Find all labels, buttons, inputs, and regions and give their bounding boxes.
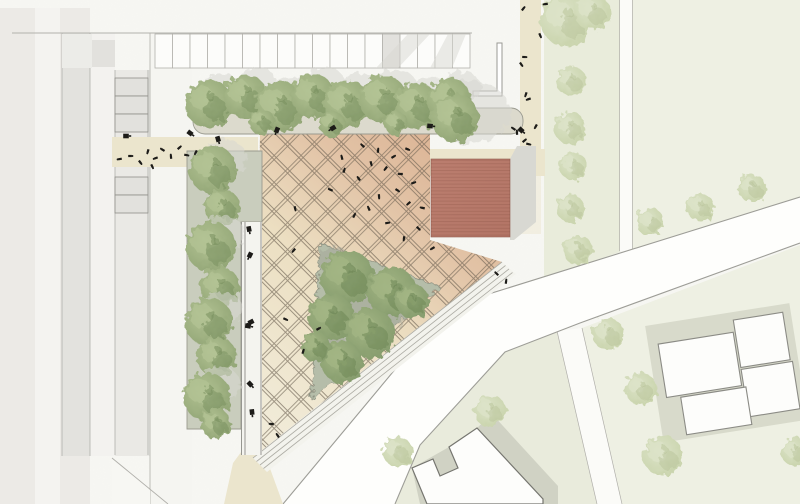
tree-shade (638, 385, 653, 400)
tree-shade (568, 77, 582, 91)
tree (384, 111, 408, 135)
bench-stem (129, 135, 131, 137)
parking-stall-top (173, 34, 191, 68)
southeast-building (741, 361, 800, 417)
parking-stall-top (225, 34, 243, 68)
tree-shade (204, 316, 227, 339)
tree-shade (605, 330, 620, 345)
tree-speckle (340, 352, 348, 360)
tree-shade (450, 112, 473, 135)
tree-speckle (218, 277, 225, 284)
tree-speckle (395, 117, 399, 121)
tree-speckle (569, 201, 574, 206)
tree-shade (259, 119, 271, 131)
tree (201, 409, 231, 439)
tree (395, 284, 429, 318)
left-building-complex (0, 8, 192, 504)
person-body (522, 56, 526, 58)
top-strip-gray-a (62, 34, 92, 68)
tree-speckle (278, 95, 287, 104)
person-figure (128, 155, 133, 157)
tree-speckle (209, 235, 218, 244)
tree-speckle (221, 198, 227, 204)
tree-shade (487, 407, 502, 422)
tree-shade (588, 7, 605, 24)
person-body (516, 131, 518, 135)
tree-speckle (649, 215, 654, 220)
tree-shade (749, 184, 762, 197)
tree-speckle (640, 381, 646, 387)
tree-speckle (577, 243, 582, 248)
tree (559, 152, 587, 180)
tree-speckle (453, 106, 462, 115)
tree-speckle (215, 417, 220, 422)
tree (738, 174, 766, 202)
tree (563, 235, 593, 265)
tree-shade (697, 203, 710, 216)
plan-root (0, 0, 800, 504)
parking-stall-top (313, 34, 331, 68)
tree (592, 318, 624, 350)
person-figure (522, 56, 527, 58)
tree-speckle (205, 385, 214, 394)
parking-stall-top (208, 34, 226, 68)
tree-shade (365, 327, 389, 351)
north-south-street (620, 0, 632, 251)
tree-speckle (331, 118, 336, 123)
tree (301, 332, 331, 362)
tree-speckle (794, 445, 799, 450)
tree-shade (338, 357, 358, 377)
pavilion-roof-stripes (431, 159, 510, 237)
person-figure (516, 130, 518, 135)
parking-stall-west (115, 114, 148, 132)
tree-speckle (572, 159, 577, 164)
parking-stall-top (365, 34, 383, 68)
tree-shade (659, 451, 678, 470)
parking-stall-west (115, 195, 148, 213)
person-figure (398, 173, 403, 175)
top-strip-gray-b (92, 40, 115, 67)
person-body (170, 155, 173, 159)
tree-speckle (381, 87, 390, 96)
parking-stall-top (348, 34, 366, 68)
tree-shade (395, 448, 409, 462)
person-body (270, 423, 274, 425)
bench-seat (245, 323, 251, 329)
tree-shade (342, 270, 368, 296)
person-body (403, 236, 406, 240)
southeast-building (733, 312, 790, 367)
tree-shade (567, 204, 580, 217)
tree-speckle (207, 310, 216, 319)
tree (383, 437, 413, 467)
tree-speckle (315, 340, 320, 345)
parking-stall-west (115, 177, 148, 195)
tree-speckle (211, 158, 220, 167)
tree-shade (326, 311, 348, 333)
parking-stall-top (330, 34, 348, 68)
tree-shade (570, 162, 583, 175)
bench-seat (427, 123, 433, 128)
tree-shade (409, 297, 425, 313)
tree-shade (213, 420, 227, 434)
left-building-wing (62, 33, 90, 456)
tree (249, 109, 275, 135)
tree-shade (394, 120, 406, 132)
site-plan-stage (0, 0, 800, 504)
tree-speckle (564, 8, 573, 17)
left-building-seam (35, 8, 60, 504)
parking-stall-top (155, 34, 173, 68)
tree-speckle (661, 446, 668, 453)
tree-speckle (243, 85, 251, 93)
tree-speckle (215, 347, 222, 354)
bench-seat (123, 134, 129, 139)
tree (643, 436, 683, 476)
bench-stem (251, 415, 253, 418)
tree (474, 395, 506, 427)
tree-speckle (390, 280, 399, 289)
tree-speckle (261, 116, 266, 121)
tree-speckle (569, 120, 575, 126)
tree (556, 66, 586, 96)
tree-speckle (311, 85, 319, 93)
person-body (128, 155, 132, 157)
tree (686, 193, 714, 221)
southeast-building (658, 332, 742, 397)
parking-aisle (90, 33, 115, 456)
bench-seat (249, 409, 254, 415)
tree (556, 194, 584, 222)
southeast-buildings (645, 303, 800, 442)
tree-speckle (591, 3, 597, 9)
person-head (131, 155, 133, 157)
tree (625, 373, 657, 405)
tree-shade (647, 218, 660, 231)
tree (636, 208, 664, 236)
tree-shade (567, 124, 582, 139)
tree-speckle (411, 293, 417, 299)
tree-speckle (570, 74, 575, 79)
tree-speckle (368, 321, 377, 330)
parking-stall-west (115, 78, 148, 96)
tree (319, 111, 345, 137)
person-body (399, 173, 403, 175)
tree-shade (208, 164, 231, 187)
bench-stem (433, 125, 436, 127)
tree (554, 112, 586, 144)
tree-speckle (489, 403, 495, 409)
parking-stall-top (295, 34, 313, 68)
parking-stall-west (115, 96, 148, 114)
tree-shade (575, 246, 589, 260)
parking-stall-top (190, 34, 208, 68)
tree-speckle (699, 200, 704, 205)
tree-speckle (751, 181, 756, 186)
tree-speckle (345, 92, 354, 101)
tree-shade (206, 241, 230, 265)
tree-speckle (329, 306, 337, 314)
tree-shade (313, 343, 327, 357)
person-body (377, 149, 380, 153)
tree-speckle (345, 264, 355, 274)
tree-speckle (207, 92, 216, 101)
tree (431, 94, 479, 142)
person-figure (269, 423, 274, 425)
parking-stall-top (278, 34, 296, 68)
tree-speckle (607, 326, 613, 332)
tree-speckle (397, 445, 402, 450)
parking-stall-top (243, 34, 261, 68)
tree (186, 222, 236, 272)
site-plan-canvas (0, 0, 800, 504)
parking-stall-top (260, 34, 278, 68)
tree-speckle (415, 95, 423, 103)
person-body (378, 194, 380, 198)
